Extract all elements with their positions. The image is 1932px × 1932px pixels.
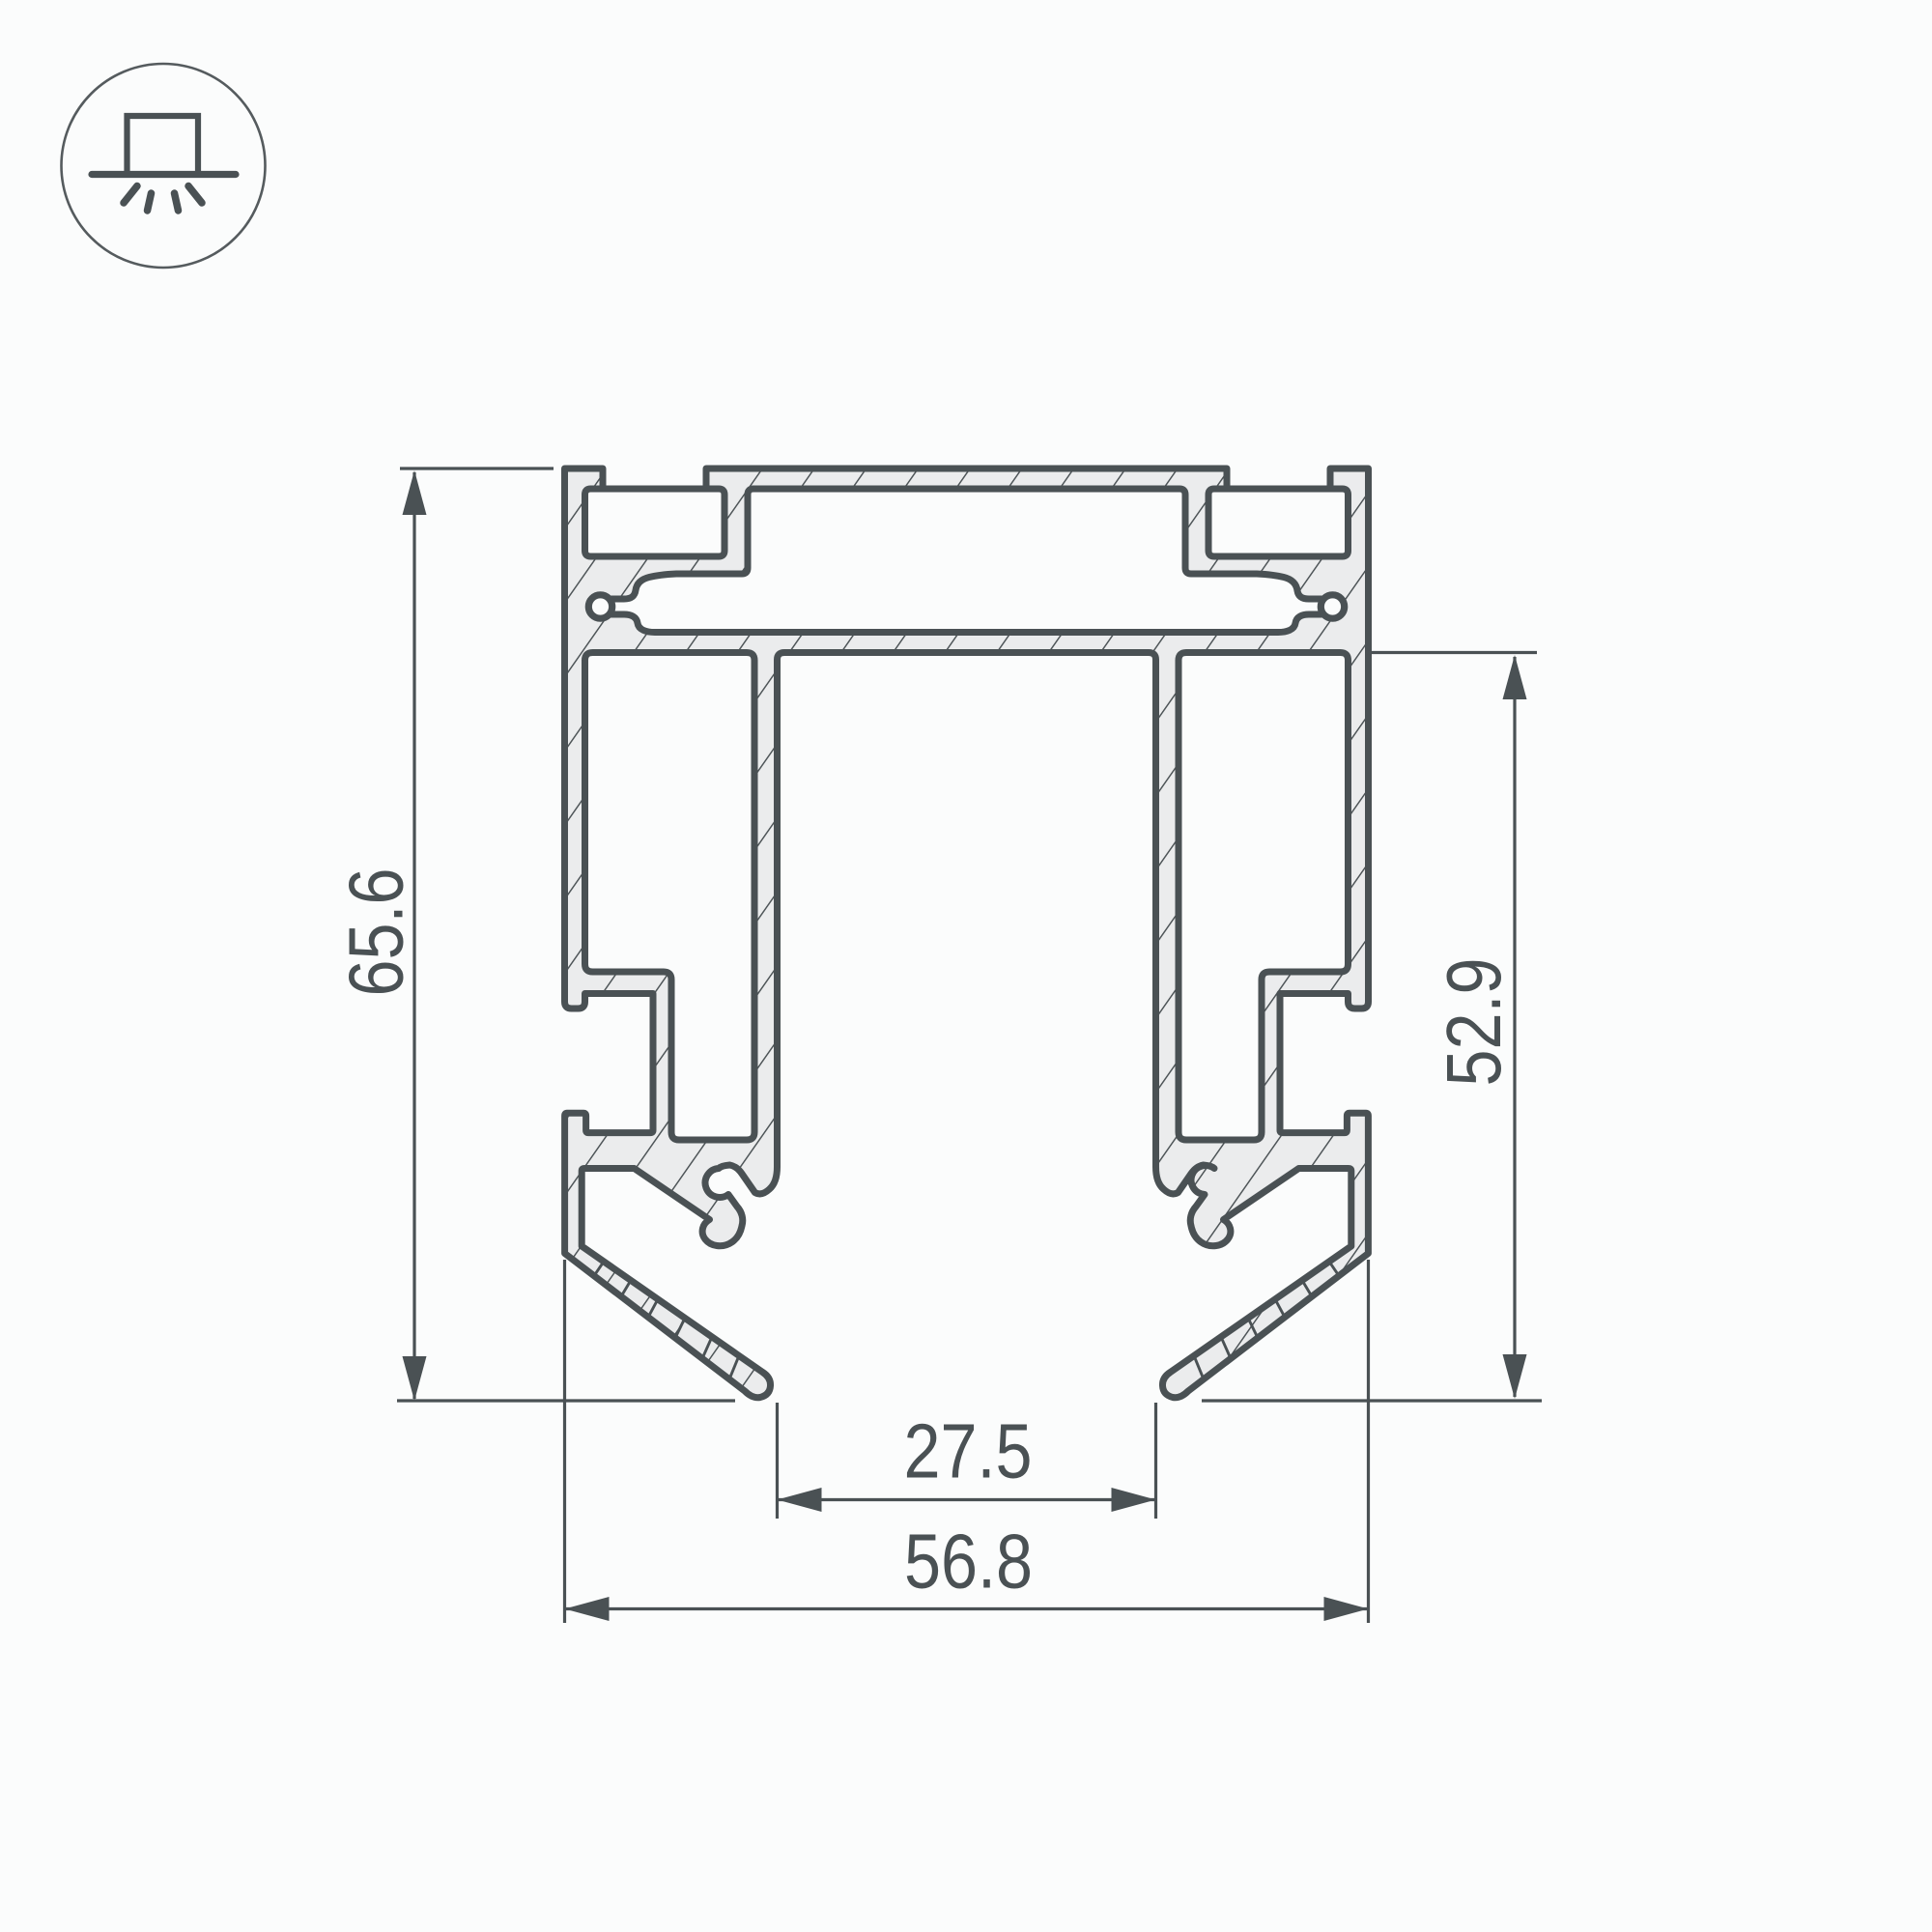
svg-text:27.5: 27.5 [904,1408,1033,1494]
svg-text:56.8: 56.8 [904,1519,1033,1605]
svg-text:52.9: 52.9 [1431,958,1517,1087]
svg-text:65.6: 65.6 [333,868,419,997]
